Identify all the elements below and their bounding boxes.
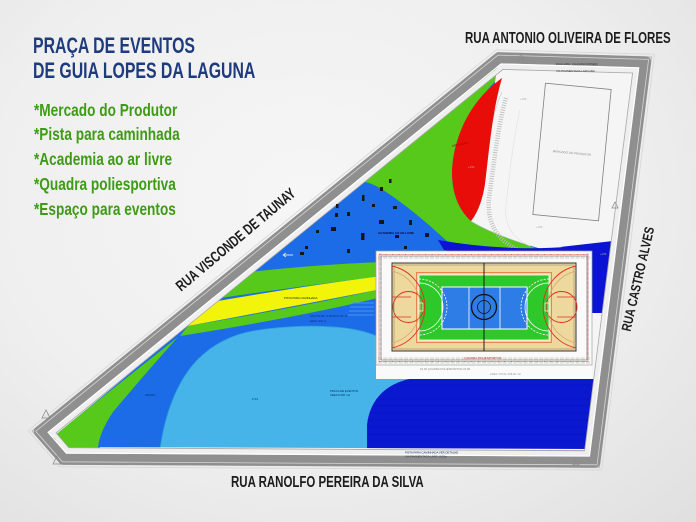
svg-text:+150: +150 bbox=[600, 252, 607, 256]
svg-text:P-01: P-01 bbox=[252, 397, 258, 401]
svg-text:VIA PAVIMENTADA LARG. 8,00m: VIA PAVIMENTADA LARG. 8,00m bbox=[405, 455, 448, 459]
svg-text:VIA PAVIMENTADA LARGURA: VIA PAVIMENTADA LARGURA bbox=[556, 69, 595, 73]
svg-text:AREA 5.000 m2: AREA 5.000 m2 bbox=[330, 393, 350, 397]
svg-text:15,00 QUADRA POLIESPORTIVA: 15,00 QUADRA POLIESPORTIVA 15,00 bbox=[420, 367, 471, 371]
svg-text:+150: +150 bbox=[536, 225, 543, 229]
svg-text:QUADRA POLIESPORTIVA: QUADRA POLIESPORTIVA bbox=[464, 356, 501, 360]
svg-text:GRAMA: GRAMA bbox=[145, 393, 155, 397]
svg-text:RUA LARG. CALCADA PASSEIO: RUA LARG. CALCADA PASSEIO bbox=[556, 62, 598, 66]
svg-text:AREA TOTAL 608,00 m2: AREA TOTAL 608,00 m2 bbox=[490, 372, 521, 376]
svg-text:+150: +150 bbox=[468, 165, 475, 169]
svg-text:ELEV. 231 m: ELEV. 231 m bbox=[310, 319, 327, 323]
svg-text:ACADEMIA AO AR LIVRE: ACADEMIA AO AR LIVRE bbox=[378, 231, 414, 235]
svg-text:+150: +150 bbox=[520, 97, 527, 101]
svg-text:31'07'53.66" S 54'29'37.40" O: 31'07'53.66" S 54'29'37.40" O bbox=[310, 314, 348, 318]
svg-text:PISTA PARA CAMINHADA: PISTA PARA CAMINHADA bbox=[284, 296, 317, 300]
